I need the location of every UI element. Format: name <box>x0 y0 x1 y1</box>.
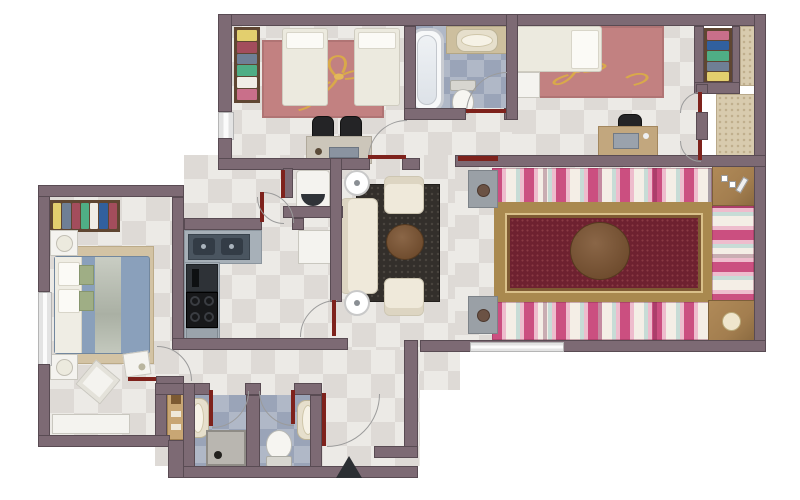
folded-clothes <box>707 72 729 81</box>
majlis-cushions-top <box>492 168 712 206</box>
pillow <box>358 32 396 49</box>
majlis-door-leaf <box>458 156 498 161</box>
wall-top-main <box>218 14 766 26</box>
folded-clothes <box>237 54 257 65</box>
four-burner-cooktop <box>186 292 218 328</box>
wall-entry-vertical <box>404 340 418 458</box>
floor-plan-canvas <box>0 0 800 500</box>
decor-dot-icon <box>138 363 146 371</box>
lounge-sofa <box>340 198 378 294</box>
decor-plate-icon <box>56 235 73 252</box>
shelf-item <box>171 395 181 404</box>
wall-master-left-upper <box>38 185 50 292</box>
majlis-corner-table-tray <box>708 300 756 342</box>
round-coffee-table <box>386 224 424 260</box>
folded-clothes <box>90 203 98 229</box>
window-kids-left <box>218 112 234 140</box>
folded-clothes <box>237 77 257 88</box>
shelf-item <box>171 411 181 417</box>
master-nightstand-top <box>50 230 78 256</box>
folded-clothes <box>237 42 257 53</box>
wall-wardrobe2-right <box>732 26 740 84</box>
majlis-side-stand-top <box>468 170 498 208</box>
pillow <box>58 262 80 286</box>
wall-bathroom-bottom <box>404 108 466 120</box>
balcony-door-leaf-top <box>698 92 702 112</box>
wall-south-bottom <box>183 466 418 478</box>
faucet-icon <box>201 244 206 249</box>
shower-room-door-leaf <box>209 390 213 426</box>
entrance-door-leaf <box>322 393 326 446</box>
wall-bathroom-left <box>404 26 416 120</box>
shower-tray <box>206 430 246 466</box>
window-master-left <box>38 292 52 366</box>
tray-icon <box>477 309 490 322</box>
green-cushion <box>79 265 94 285</box>
tray-icon <box>477 184 490 197</box>
window-majlis-bottom <box>470 342 564 352</box>
mouse-icon <box>643 133 649 139</box>
built-in-oven <box>186 264 218 292</box>
folded-clothes <box>53 203 61 229</box>
decor-plate-icon <box>56 359 73 376</box>
folded-clothes <box>237 30 257 41</box>
master-nightstand-bottom <box>50 354 78 380</box>
wall-kids-bottom-cap <box>402 158 420 170</box>
wall-kids-left-upper <box>218 14 232 112</box>
folded-clothes <box>62 203 70 229</box>
shelf-item <box>171 424 181 430</box>
folded-clothes <box>81 203 89 229</box>
wall-master-bottom <box>38 435 170 447</box>
dice-icon <box>729 181 736 188</box>
faucet-icon <box>229 244 234 249</box>
wall-master-lower-right <box>155 390 167 440</box>
wall-entry-bottom <box>374 446 418 458</box>
wall-bathrooms-top-c <box>294 383 322 395</box>
shower-drain-icon <box>214 451 222 459</box>
armchair-bottom <box>384 278 424 316</box>
wall-hall-vertical <box>330 158 342 302</box>
keyboard-icon <box>329 147 359 158</box>
burner-icon <box>204 296 214 306</box>
twin-bed-2 <box>354 28 400 106</box>
wall-kitchen-top <box>184 218 262 230</box>
folded-clothes <box>237 65 257 76</box>
green-cushion <box>79 291 94 311</box>
single-bed <box>514 26 602 72</box>
folded-clothes <box>707 31 729 40</box>
entrance-arrow-icon <box>336 456 362 478</box>
kids-wardrobe <box>234 27 260 103</box>
majlis-cushions-bottom <box>492 302 712 340</box>
majlis-side-stand-bottom <box>468 296 498 334</box>
burner-icon <box>190 312 200 322</box>
majlis-round-center-table <box>570 222 630 280</box>
oven-handle-icon <box>192 269 199 287</box>
folded-clothes <box>109 203 117 229</box>
master-double-bed <box>54 256 150 354</box>
master-bedroom-door-leaf <box>128 377 156 381</box>
master-wardrobe <box>50 200 120 232</box>
folded-clothes <box>707 51 729 60</box>
wall-kitchen-bottom <box>172 338 348 350</box>
folded-clothes <box>72 203 80 229</box>
round-side-lamp-bottom <box>344 290 370 316</box>
low-dresser <box>52 414 130 434</box>
desk-lamp-icon <box>315 148 322 155</box>
wc-door-leaf <box>291 390 295 424</box>
folded-clothes <box>237 89 257 100</box>
folded-clothes <box>707 62 729 71</box>
computer-desk <box>598 126 658 156</box>
kids-room-door-leaf <box>368 155 406 159</box>
wall-master-right <box>172 197 184 342</box>
pillow <box>58 289 80 313</box>
wall-kids-bottom <box>218 158 370 170</box>
kitchen-double-sink <box>188 234 250 260</box>
wall-right-outer <box>754 14 766 352</box>
wc-toilet-bowl <box>266 430 292 459</box>
burner-icon <box>190 296 200 306</box>
majlis-corner-table-games <box>712 166 756 206</box>
armchair-top <box>384 176 424 214</box>
majlis-cushions-right <box>712 204 754 304</box>
wall-balcony-door-mid <box>696 112 708 140</box>
laundry-door-leaf <box>281 170 285 198</box>
wall-master-top <box>38 185 184 197</box>
remote-icon <box>735 177 748 194</box>
burner-icon <box>204 312 214 322</box>
wall-bathroom-right <box>506 14 518 120</box>
pillow <box>571 30 599 69</box>
wall-majlis-top <box>455 155 766 167</box>
bedroom2-wardrobe <box>704 28 732 84</box>
wall-wardrobe2-left <box>694 26 704 88</box>
wall-shower-room-left <box>183 383 195 478</box>
laptop-icon <box>613 133 639 149</box>
round-side-lamp-top <box>344 170 370 196</box>
small-storage-box <box>122 350 151 377</box>
bathroom-door-leaf <box>466 109 506 113</box>
floor-balcony-lower <box>716 94 756 157</box>
kitchen-side-door-leaf <box>332 300 336 336</box>
throw-blanket <box>95 257 121 353</box>
dice-icon <box>721 175 728 182</box>
crescent-tray-icon <box>722 312 741 331</box>
wall-southwest-connector <box>168 440 184 478</box>
white-side-table <box>298 230 334 264</box>
pillow <box>286 32 324 49</box>
folded-clothes <box>707 41 729 50</box>
twin-bed-1 <box>282 28 328 106</box>
bathroom-washbasin <box>456 29 498 52</box>
washing-machine <box>296 170 330 210</box>
folded-clothes <box>99 203 107 229</box>
washer-door-icon <box>301 194 325 206</box>
balcony-door-leaf-bottom <box>698 140 702 160</box>
